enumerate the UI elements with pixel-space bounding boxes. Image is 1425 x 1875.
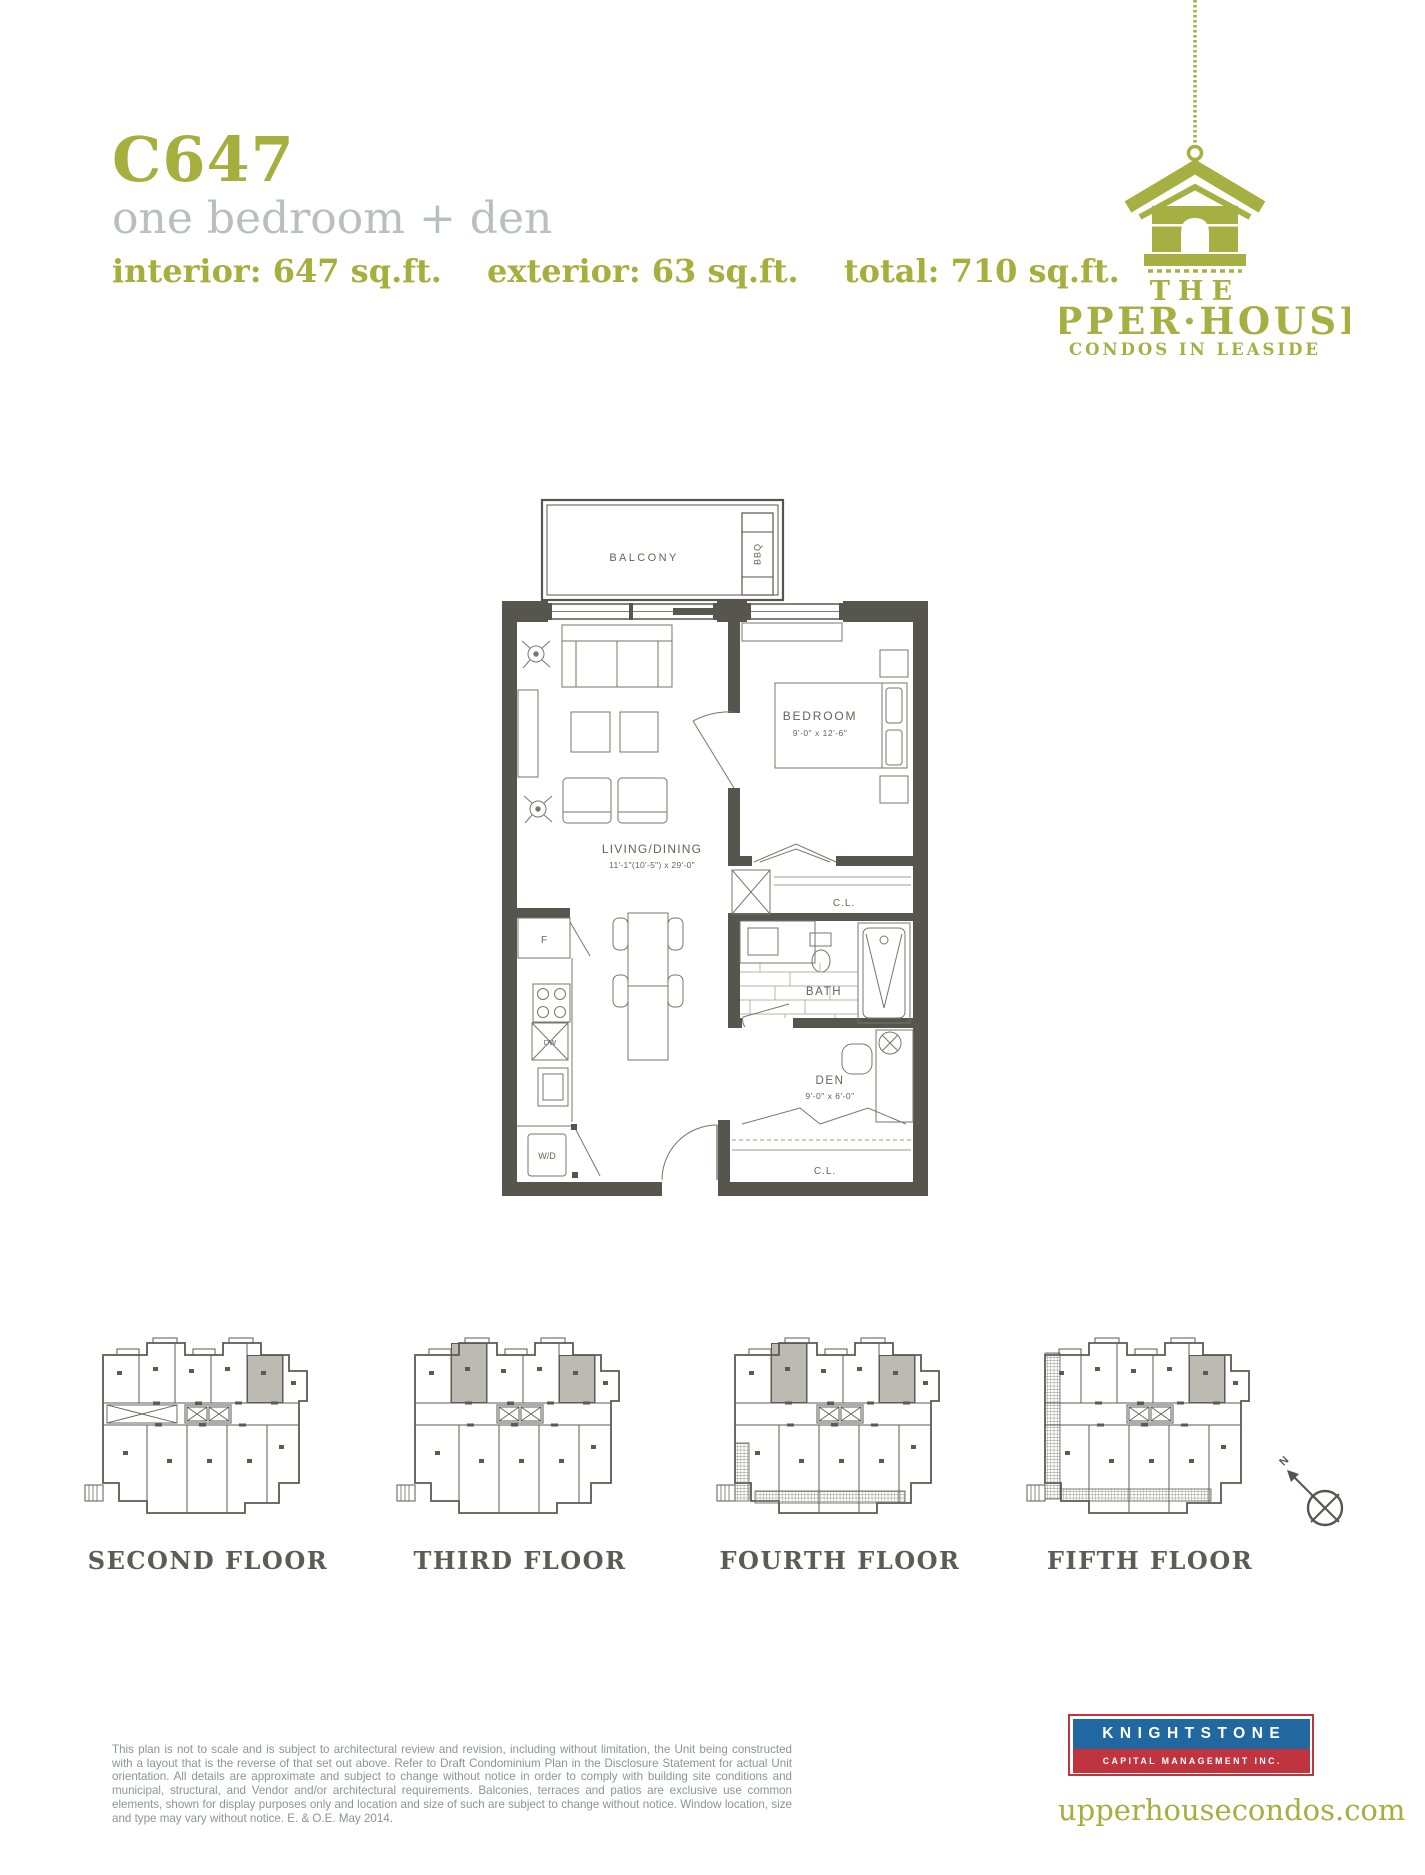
- knightstone-name: KNIGHTSTONE: [1073, 1719, 1310, 1749]
- label-bedroom-dim: 9'-0" x 12'-6": [793, 728, 848, 738]
- label-living-dim: 11'-1"(10'-5") x 29'-0": [609, 860, 695, 870]
- unit-type: one bedroom + den: [112, 196, 1154, 242]
- second-floor-plan: [83, 1325, 333, 1535]
- area-stats: interior: 647 sq.ft. exterior: 63 sq.ft.…: [112, 254, 1154, 288]
- label-den-dim: 9'-0" x 6'-0": [805, 1091, 854, 1101]
- highlighted-unit: [1190, 1356, 1225, 1403]
- label-bath: BATH: [806, 986, 842, 998]
- floorplan-second-floor: SECOND FLOOR: [78, 1325, 338, 1575]
- floor-label: THIRD FLOOR: [390, 1546, 650, 1575]
- balcony-outline: [542, 500, 783, 600]
- birdhouse-icon: [1128, 0, 1262, 271]
- compass-icon: N: [1273, 1446, 1363, 1541]
- label-living-dining: LIVING/DINING: [602, 842, 702, 856]
- label-bedroom: BEDROOM: [783, 709, 858, 723]
- highlighted-unit: [880, 1356, 915, 1403]
- header: C647 one bedroom + den interior: 647 sq.…: [112, 130, 1154, 288]
- floor-label: SECOND FLOOR: [78, 1546, 338, 1575]
- page-title: C647: [112, 130, 1154, 190]
- floor-label: FOURTH FLOOR: [710, 1546, 970, 1575]
- label-fridge: F: [541, 935, 547, 946]
- interior-area: interior: 647 sq.ft.: [112, 252, 442, 290]
- knightstone-subtitle: CAPITAL MANAGEMENT INC.: [1073, 1749, 1310, 1773]
- brand-logo: THE UPPER·HOUSE CONDOS IN LEASIDE: [1060, 0, 1350, 365]
- floor-label: FIFTH FLOOR: [1020, 1546, 1280, 1575]
- knightstone-logo: KNIGHTSTONE CAPITAL MANAGEMENT INC.: [1068, 1714, 1314, 1776]
- compass-north-label: N: [1277, 1454, 1291, 1468]
- website-url: upperhousecondos.com: [1058, 1793, 1320, 1827]
- label-bbq: BBQ: [753, 543, 763, 565]
- label-dishwasher: DW: [544, 1038, 557, 1047]
- highlighted-unit: [452, 1344, 487, 1403]
- label-balcony: BALCONY: [609, 552, 678, 564]
- disclaimer-text: This plan is not to scale and is subject…: [112, 1743, 792, 1825]
- fourth-floor-plan: [715, 1325, 965, 1535]
- highlighted-unit: [560, 1356, 595, 1403]
- floorplan-third-floor: THIRD FLOOR: [390, 1325, 650, 1575]
- highlighted-unit: [772, 1344, 807, 1403]
- floorplan-fourth-floor: FOURTH FLOOR: [710, 1325, 970, 1575]
- label-den: DEN: [815, 1075, 844, 1087]
- brand-tagline: CONDOS IN LEASIDE: [1069, 340, 1321, 359]
- label-closet-upper: C.L.: [833, 898, 855, 909]
- floorplan-page: C647 one bedroom + den interior: 647 sq.…: [0, 0, 1425, 1875]
- label-washer-dryer: W/D: [538, 1151, 556, 1161]
- brand-name: UPPER·HOUSE: [1060, 299, 1350, 343]
- floorplan-fifth-floor: FIFTH FLOOR: [1020, 1325, 1280, 1575]
- exterior-area: exterior: 63 sq.ft.: [487, 252, 799, 290]
- ceiling-fan-icon: [524, 796, 552, 823]
- terrace-hatch: [755, 1491, 905, 1503]
- main-floorplan: BALCONY BBQ BEDROOM 9'-0" x 12'-6" LIVIN…: [480, 410, 950, 1210]
- terrace-hatch: [735, 1443, 749, 1501]
- unit-walls: [502, 601, 928, 1196]
- label-closet-lower: C.L.: [814, 1166, 836, 1177]
- ceiling-fan-icon: [522, 641, 550, 668]
- fifth-floor-plan: [1025, 1325, 1275, 1535]
- terrace-hatch: [1061, 1489, 1211, 1501]
- highlighted-unit: [248, 1356, 283, 1403]
- terrace-hatch: [1045, 1353, 1060, 1499]
- third-floor-plan: [395, 1325, 645, 1535]
